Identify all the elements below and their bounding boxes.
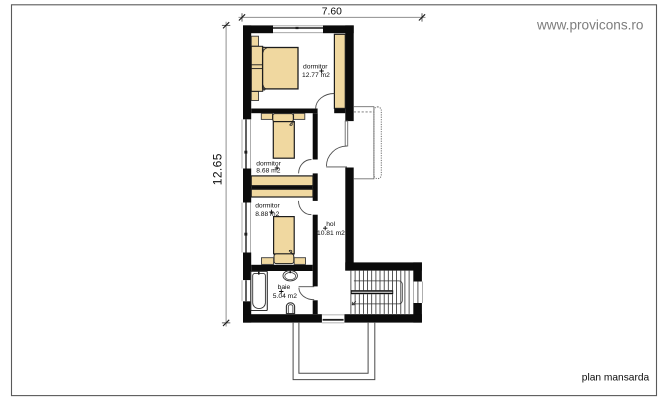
svg-text:dormitor: dormitor — [303, 63, 328, 70]
svg-text:12.65: 12.65 — [211, 153, 225, 185]
svg-text:12.77 m2: 12.77 m2 — [302, 72, 330, 79]
svg-text:8.88 m2: 8.88 m2 — [255, 211, 279, 218]
svg-text:plan mansarda: plan mansarda — [582, 373, 650, 384]
svg-text:dormitor: dormitor — [256, 160, 281, 167]
svg-text:baie: baie — [278, 284, 291, 291]
svg-text:10.81 m2: 10.81 m2 — [317, 230, 345, 237]
svg-text:hol: hol — [326, 221, 335, 228]
svg-text:5.04 m2: 5.04 m2 — [273, 293, 297, 300]
svg-text:7.60: 7.60 — [322, 7, 342, 18]
svg-text:dormitor: dormitor — [255, 203, 280, 210]
svg-text:www.provicons.ro: www.provicons.ro — [536, 18, 644, 33]
